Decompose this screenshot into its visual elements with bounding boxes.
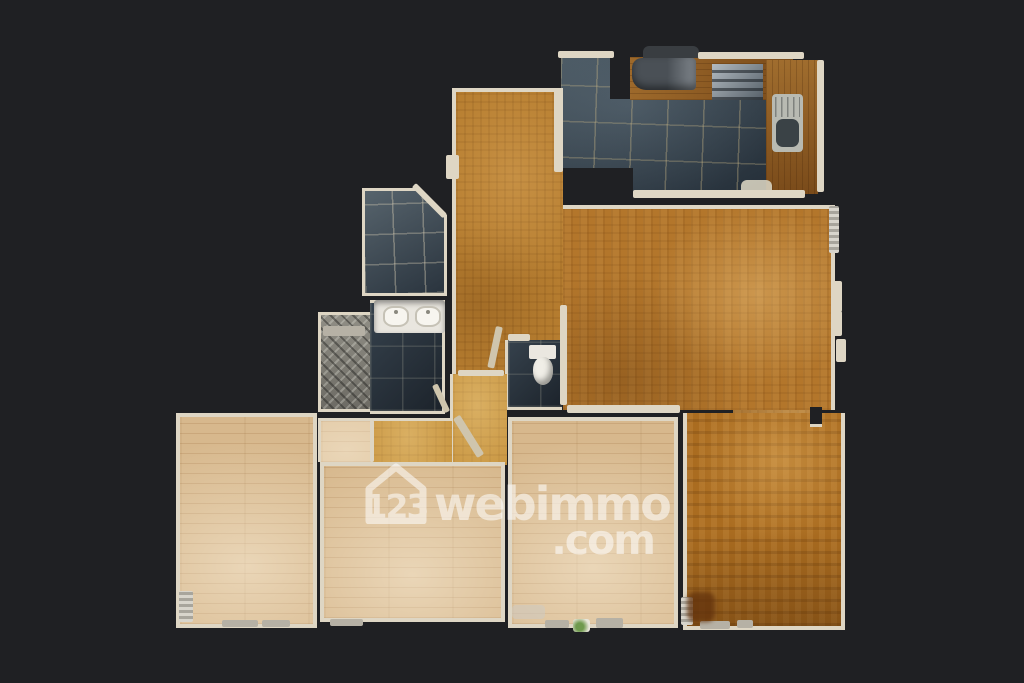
bedroom2: [320, 462, 505, 622]
wall-nook-door: [370, 420, 374, 462]
sill-diningroom-b: [737, 620, 753, 628]
wall-stub-diningroom: [810, 407, 822, 427]
plant-bedroom3: [573, 619, 590, 632]
wall-wc-living: [560, 305, 567, 405]
window-living-3: [836, 339, 846, 362]
wall-kitchen-top-left: [558, 51, 614, 58]
wall-entry-notch: [446, 155, 459, 179]
window-living-1: [833, 281, 842, 312]
sill-bedroom1-b: [262, 620, 290, 627]
living-room: [563, 205, 835, 410]
threshold-corridor: [458, 370, 504, 376]
entry-hall: [452, 88, 563, 375]
corridor-horizontal: [372, 418, 452, 465]
wall-kitchen-top-right: [698, 52, 804, 59]
wall-kitchen-bottom: [633, 190, 805, 198]
bedroom1-nook: [318, 418, 372, 462]
kitchen-sink: [772, 94, 803, 152]
hood-shadow: [643, 46, 699, 58]
threshold-entry-kitchen: [554, 88, 563, 172]
shower-step: [323, 326, 365, 336]
bedroom1: [176, 413, 317, 628]
sill-bedroom2: [330, 619, 363, 626]
sill-bedroom3-b: [596, 618, 623, 628]
toilet-bowl: [533, 357, 553, 385]
radiator-bedroom1: [179, 591, 193, 622]
wall-wc-top: [508, 334, 530, 341]
wall-kitchen-right: [817, 60, 824, 192]
sill-bedroom3-a: [545, 620, 569, 628]
patch-diningroom: [687, 592, 715, 622]
sill-bedroom1-a: [222, 620, 258, 627]
vanity-basin-left: [383, 306, 409, 327]
window-living-2: [833, 311, 842, 336]
patch-bedroom3: [512, 605, 545, 619]
cooker-hood: [632, 58, 696, 90]
cooktop: [712, 64, 763, 100]
floorplan-stage: 123 webimmo .com: [0, 0, 1024, 683]
sill-diningroom-a: [700, 621, 730, 629]
wall-living-bottom-left: [567, 405, 680, 413]
bedroom3: [508, 417, 678, 628]
radiator-living: [829, 206, 839, 253]
vanity-basin-right: [415, 306, 441, 327]
